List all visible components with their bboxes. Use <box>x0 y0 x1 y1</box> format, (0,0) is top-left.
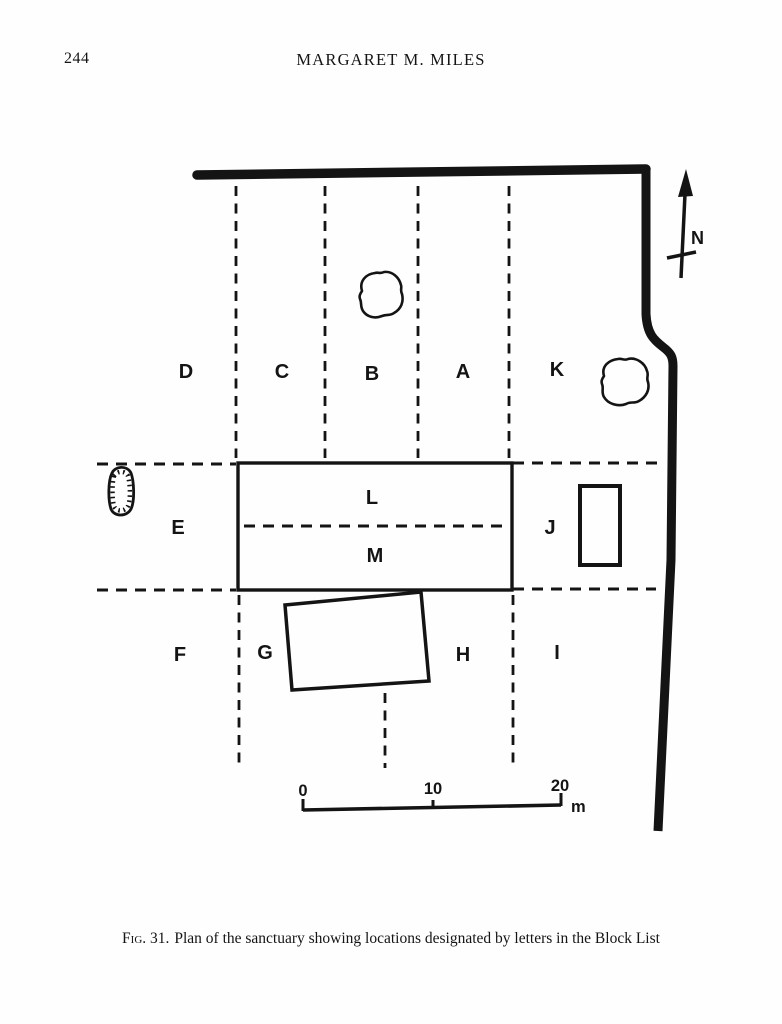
scale-unit-label: m <box>571 798 586 816</box>
scale-label-0: 0 <box>298 782 307 800</box>
scale-label-10: 10 <box>424 780 442 798</box>
sanctuary-plan-figure: N 0 10 20 m D C B A K E L M J F G H I <box>0 0 782 1024</box>
top-wall <box>197 169 646 175</box>
zone-label-g: G <box>257 642 273 664</box>
zone-label-j: J <box>544 517 555 539</box>
zone-label-i: I <box>554 642 560 664</box>
zone-label-f: F <box>174 644 186 666</box>
scale-label-20: 20 <box>551 777 569 795</box>
paper-page: 244 MARGARET M. MILES <box>0 0 782 1024</box>
zone-label-c: C <box>275 361 289 383</box>
boulder-zone-b <box>360 272 403 317</box>
zone-label-h: H <box>456 644 470 666</box>
hatched-stone-ticks <box>113 472 130 511</box>
right-wall <box>646 170 673 831</box>
zone-label-d: D <box>179 361 193 383</box>
boulder-zone-k <box>602 359 649 406</box>
north-arrow-shaft <box>681 194 685 278</box>
zone-label-l: L <box>366 487 378 509</box>
zone-label-a: A <box>456 361 470 383</box>
zone-label-k: K <box>550 359 565 381</box>
temple-building-outline <box>238 463 512 590</box>
zone-label-b: B <box>365 363 379 385</box>
figure-caption: Fig. 31.Plan of the sanctuary showing lo… <box>0 930 782 948</box>
north-label: N <box>691 228 704 248</box>
figure-caption-number: Fig. 31. <box>122 930 169 947</box>
zone-label-m: M <box>367 545 384 567</box>
zone-label-e: E <box>171 517 184 539</box>
figure-caption-text: Plan of the sanctuary showing locations … <box>174 930 660 947</box>
north-arrow-head <box>678 169 693 197</box>
tilted-structure-outline <box>285 592 429 690</box>
block-j-rectangle <box>580 486 620 565</box>
